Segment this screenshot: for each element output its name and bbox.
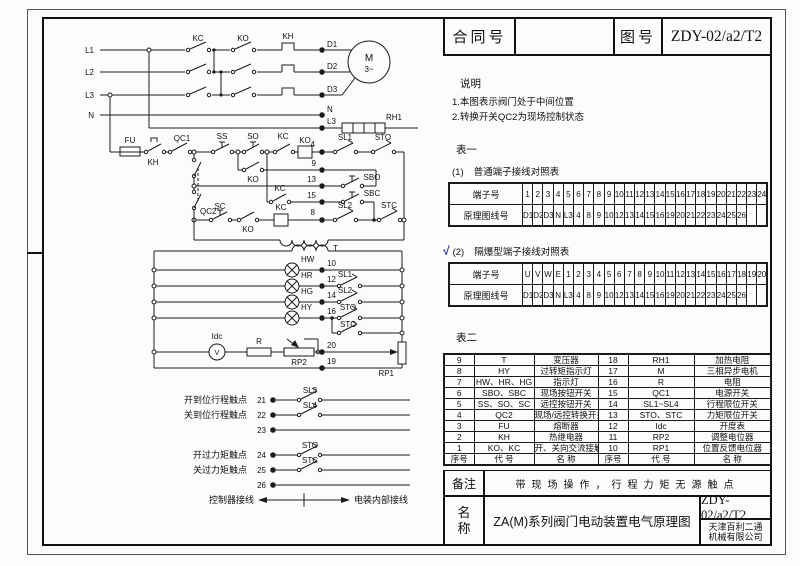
terminal-cell: 18 (736, 263, 746, 285)
schem-label-33: KO (242, 225, 254, 234)
schem-label-2: L3 (85, 91, 94, 100)
contract-no-value (516, 19, 615, 54)
schem-label-67: 24 (257, 451, 266, 460)
terminal-cell: 24 (716, 205, 726, 227)
terminal-cell: 17 (686, 183, 696, 205)
terminal-cell: 18 (696, 183, 706, 205)
schem-label-6: KH (282, 32, 293, 41)
terminal-cell: 8 (584, 205, 594, 227)
terminal-cell: 1 (563, 263, 573, 285)
terminal-cell: 21 (726, 183, 736, 205)
terminal-cell: N (553, 285, 563, 307)
terminal-cell: 1 (523, 183, 533, 205)
component-cell: 位置反馈电位器 (694, 443, 771, 454)
schem-label-43: 12 (327, 275, 336, 284)
component-cell: QC1 (628, 388, 694, 399)
schem-label-46: 14 (327, 291, 336, 300)
component-cell: 热继电器 (534, 432, 598, 443)
terminal-cell: 14 (696, 263, 706, 285)
component-cell: 三相异步电机 (694, 366, 771, 377)
schem-label-64: SL4 (303, 401, 318, 410)
terminal-cell: 22 (696, 285, 706, 307)
component-cell: SS、SO、SC (474, 399, 534, 410)
terminal-cell: 24 (757, 183, 767, 205)
schem-label-62: 关到位行程触点 (184, 409, 247, 420)
component-cell: 过转矩指示灯 (534, 366, 598, 377)
schem-label-34: KC (275, 203, 286, 212)
terminal-cell: 13 (645, 183, 655, 205)
schem-label-31: SBC (364, 189, 381, 198)
component-cell: 开、关向交流接触器 (534, 443, 598, 454)
terminal-cell: 15 (645, 285, 655, 307)
terminal-cell: 16 (655, 205, 665, 227)
schem-label-39: T (333, 244, 338, 253)
schem-label-10: N (327, 105, 333, 114)
terminal-cell: 13 (624, 285, 634, 307)
terminal-row: 原理图线号D1D2D3NL348910121314151619202122232… (449, 285, 767, 307)
terminal-cell: 23 (747, 183, 757, 205)
terminal-cell: 22 (696, 205, 706, 227)
terminal-cell: 8 (635, 263, 645, 285)
component-cell: 电阻 (694, 377, 771, 388)
schem-label-37: STC (381, 201, 397, 210)
schem-label-68: STO (302, 441, 318, 450)
schem-label-11: M (365, 53, 373, 64)
schem-label-14: RH1 (386, 113, 403, 122)
component-cell: 名 称 (694, 454, 771, 466)
component-cell: 代 号 (628, 454, 694, 466)
terminal-cell (747, 285, 757, 307)
component-cell: 名 称 (534, 454, 598, 466)
component-cell: 指示灯 (534, 377, 598, 388)
component-cell: KH (474, 432, 534, 443)
exproof-terminal-table: 端子号UVWE1234567891011121314151617181920原理… (448, 262, 768, 307)
table2-heading: 表二 (456, 330, 477, 345)
schem-label-8: D2 (327, 62, 338, 71)
terminal-cell: 16 (655, 285, 665, 307)
drawing-no-value: ZDY-02/a2/T2 (663, 19, 770, 54)
component-cell: 13 (598, 410, 628, 421)
terminal-cell: 7 (584, 183, 594, 205)
schem-label-7: D1 (327, 40, 338, 49)
component-row: 8HY过转矩指示灯17M三相异步电机 (444, 366, 771, 377)
schem-label-54: R (256, 337, 262, 346)
check-mark: √ (443, 244, 450, 258)
terminal-row: 端子号UVWE1234567891011121314151617181920 (449, 263, 767, 285)
schem-label-63: 22 (257, 411, 266, 420)
terminal-row: 端子号1234567891011121314151617181920212223… (449, 183, 767, 205)
section1-number: (1) (452, 167, 464, 178)
schem-label-23: SL1 (338, 133, 353, 142)
terminal-cell: 4 (553, 183, 563, 205)
contract-no-label: 合同号 (445, 19, 516, 54)
schem-label-12: 3~ (364, 65, 373, 74)
terminal-cell: 9 (604, 183, 614, 205)
terminal-cell: 12 (614, 205, 624, 227)
component-cell: STO、STC (628, 410, 694, 421)
centering-mark (27, 252, 42, 254)
terminal-cell (757, 285, 767, 307)
component-row: 9T变压器18RH1加热电阻 (444, 354, 771, 366)
note-item: 2.转换开关QC2为现场控制状态 (452, 109, 584, 123)
legend-arrows (258, 493, 350, 507)
component-cell: R (628, 377, 694, 388)
terminal-cell: 19 (706, 183, 716, 205)
control-circuit (110, 138, 406, 251)
component-cell: 4 (444, 410, 474, 421)
component-cell: 远控按钮开关 (534, 399, 598, 410)
component-cell: 力矩限位开关 (694, 410, 771, 421)
table1-heading: 表一 (456, 142, 477, 157)
schem-label-26: 9 (312, 159, 317, 168)
component-cell: 16 (598, 377, 628, 388)
schem-label-72: 26 (257, 481, 266, 490)
terminal-cell: 20 (716, 183, 726, 205)
terminal-row: 原理图线号D1D2D3NL348910121314151619202122232… (449, 205, 767, 227)
component-cell: SL1~SL4 (628, 399, 694, 410)
table1-section1-label: (1)普通端子接线对照表 (452, 164, 559, 178)
component-cell: SBO、SBC (474, 388, 534, 399)
terminal-cell: 8 (584, 285, 594, 307)
component-row: 5SS、SO、SC远控按钮开关14SL1~SL4行程限位开关 (444, 399, 771, 410)
name-label: 名称 (445, 497, 485, 544)
terminal-cell: 9 (594, 205, 604, 227)
schem-label-27: 13 (307, 175, 316, 184)
schem-label-50: STO (340, 303, 356, 312)
schem-label-52: Idc (212, 332, 223, 341)
schem-label-59: 开到位行程触点 (184, 394, 247, 405)
component-table: 9T变压器18RH1加热电阻8HY过转矩指示灯17M三相异步电机7HW、HR、H… (443, 353, 772, 466)
terminal-contacts (270, 388, 410, 488)
section2-title: 隔爆型端子接线对照表 (474, 247, 569, 258)
schem-label-28: SBO (364, 173, 381, 182)
terminal-cell: 13 (624, 205, 634, 227)
component-cell: 代 号 (474, 454, 534, 466)
remarks-label: 备注 (445, 471, 485, 495)
terminal-cell: 3 (584, 263, 594, 285)
terminal-cell: 6 (614, 263, 624, 285)
terminal-cell: 26 (736, 205, 746, 227)
component-cell: 9 (444, 354, 474, 366)
terminal-cell: 19 (747, 263, 757, 285)
component-cell: 序号 (444, 454, 474, 466)
table1-section2-label: √(2)隔爆型端子接线对照表 (443, 244, 569, 258)
terminal-cell: D2 (533, 285, 543, 307)
terminal-cell: 20 (675, 285, 685, 307)
terminal-cell: U (523, 263, 533, 285)
schem-label-73: 控制器接线 (209, 494, 254, 505)
schem-label-20: KC (277, 132, 288, 141)
component-cell: FU (474, 421, 534, 432)
component-cell: 调整电位器 (694, 432, 771, 443)
schem-label-42: HR (301, 271, 313, 280)
component-cell: 10 (598, 443, 628, 454)
schem-label-3: N (88, 111, 94, 120)
schem-label-16: KH (147, 158, 158, 167)
schem-label-22: 4 (311, 140, 316, 149)
drawing-no-label: 图号 (615, 19, 663, 54)
component-cell: 电源开关 (694, 388, 771, 399)
schem-label-70: 25 (257, 466, 266, 475)
terminal-cell: 13 (686, 263, 696, 285)
component-cell: 熔断器 (534, 421, 598, 432)
drawing-sheet: L1L2L3NKCKOKHD1D2D3NM3~L3RH1FUKHQC1SSSOK… (0, 0, 800, 566)
component-cell: RH1 (628, 354, 694, 366)
schem-label-48: HY (301, 303, 313, 312)
schem-label-66: 开过力矩触点 (193, 449, 247, 460)
terminal-cell: 14 (635, 285, 645, 307)
schem-label-17: QC1 (174, 134, 191, 143)
component-cell: 8 (444, 366, 474, 377)
component-row: 序号代 号名 称序号代 号名 称 (444, 454, 771, 466)
component-cell: 18 (598, 354, 628, 366)
component-cell: 序号 (598, 454, 628, 466)
section1-title: 普通端子接线对照表 (474, 167, 560, 178)
terminal-cell: 4 (573, 205, 583, 227)
terminal-cell: 25 (726, 285, 736, 307)
schem-label-61: SL3 (303, 386, 318, 395)
schem-label-74: 电装内部接线 (354, 494, 408, 505)
component-cell: 现场/远控转换开关 (534, 410, 598, 421)
schem-label-1: L2 (85, 68, 94, 77)
component-cell: M (628, 366, 694, 377)
schem-label-57: RP1 (378, 369, 394, 378)
terminal-cell: 12 (635, 183, 645, 205)
terminal-cell: 10 (655, 263, 665, 285)
terminal-cell: 3 (543, 183, 553, 205)
terminal-cell: 10 (604, 205, 614, 227)
schem-label-15: FU (125, 136, 136, 145)
schem-label-71: STC (302, 456, 318, 465)
terminal-cell: 9 (594, 285, 604, 307)
schem-label-69: 关过力矩触点 (193, 464, 247, 475)
terminal-cell: 23 (706, 285, 716, 307)
company-line2: 机械有限公司 (708, 532, 762, 543)
component-cell: 14 (598, 399, 628, 410)
terminal-cell: D1 (523, 285, 533, 307)
schem-label-29: KC (274, 184, 285, 193)
component-cell: HY (474, 366, 534, 377)
terminal-cell: 2 (573, 263, 583, 285)
schem-label-25: KO (247, 175, 259, 184)
terminal-cell: 19 (665, 285, 675, 307)
schematic-labels: L1L2L3NKCKOKHD1D2D3NM3~L3RH1FUKHQC1SSSOK… (85, 32, 408, 505)
schem-label-18: SS (217, 132, 228, 141)
terminal-cell: 16 (716, 263, 726, 285)
schem-label-58: 19 (327, 357, 336, 366)
component-cell: 行程限位开关 (694, 399, 771, 410)
schem-label-65: 23 (257, 426, 266, 435)
name-block: 名称 ZA(M)系列阀门电动装置电气原理图 ZDY-02/a2/T2 天津百利二… (443, 497, 772, 546)
component-cell: RP2 (628, 432, 694, 443)
terminal-cell: 4 (594, 263, 604, 285)
component-cell: 6 (444, 388, 474, 399)
component-row: 4QC2现场/远控转换开关13STO、STC力矩限位开关 (444, 410, 771, 421)
schem-label-49: 16 (327, 307, 336, 316)
terminal-cell: 21 (686, 285, 696, 307)
terminal-cell: 5 (563, 183, 573, 205)
row-label: 端子号 (449, 263, 523, 285)
schem-label-4: KC (192, 34, 203, 43)
schem-label-35: 8 (311, 208, 316, 217)
terminal-cell: E (553, 263, 563, 285)
component-cell: 1 (444, 443, 474, 454)
terminal-cell: 15 (706, 263, 716, 285)
component-cell: 5 (444, 399, 474, 410)
terminal-cell: 20 (675, 205, 685, 227)
component-cell: Idc (628, 421, 694, 432)
terminal-cell: L3 (563, 285, 573, 307)
remarks-value: 带现场操作，行程力矩无源触点 (485, 471, 770, 495)
terminal-cell: 5 (604, 263, 614, 285)
terminal-cell: 11 (665, 263, 675, 285)
terminal-cell: D3 (543, 205, 553, 227)
component-cell: 7 (444, 377, 474, 388)
terminal-cell: 9 (645, 263, 655, 285)
schem-label-30: 15 (307, 191, 316, 200)
schem-label-40: HW (301, 255, 315, 264)
schem-label-13: L3 (327, 117, 336, 126)
schem-label-45: HG (301, 287, 313, 296)
notes-heading: 说明 (460, 76, 481, 91)
schem-label-60: 21 (257, 396, 266, 405)
schem-label-0: L1 (85, 46, 94, 55)
component-cell: RP1 (628, 443, 694, 454)
terminal-cell (757, 205, 767, 227)
component-row: 6SBO、SBC现场按钮开关15QC1电源开关 (444, 388, 771, 399)
schem-label-36: SL2 (338, 201, 353, 210)
component-cell: 17 (598, 366, 628, 377)
component-cell: 加热电阻 (694, 354, 771, 366)
schem-label-38: QC2 (200, 207, 217, 216)
component-row: 1KO、KC开、关向交流接触器10RP1位置反馈电位器 (444, 443, 771, 454)
schem-label-53: V (215, 350, 220, 357)
terminal-cell (747, 205, 757, 227)
schem-label-51: STC (340, 320, 356, 329)
terminal-cell: 12 (675, 263, 685, 285)
terminal-cell: 20 (757, 263, 767, 285)
row-label: 原理图线号 (449, 205, 523, 227)
lamp-circuit (152, 251, 406, 371)
terminal-cell: D2 (533, 205, 543, 227)
terminal-cell: 11 (624, 183, 634, 205)
normal-terminal-table: 端子号1234567891011121314151617181920212223… (448, 182, 768, 227)
terminal-cell: 14 (635, 205, 645, 227)
terminal-cell: 15 (665, 183, 675, 205)
schem-label-56: 20 (327, 341, 336, 350)
schem-label-19: SO (247, 132, 259, 141)
terminal-cell: 7 (624, 263, 634, 285)
component-cell: 2 (444, 432, 474, 443)
schem-label-55: RP2 (291, 358, 307, 367)
drawing-title: ZA(M)系列阀门电动装置电气原理图 (485, 497, 701, 544)
schem-label-44: SL1 (338, 270, 353, 279)
title-block: 合同号 图号 ZDY-02/a2/T2 (443, 17, 772, 56)
terminal-cell: 19 (665, 205, 675, 227)
row-label: 端子号 (449, 183, 523, 205)
company-line1: 天津百利二通 (708, 522, 762, 533)
component-row: 3FU熔断器12Idc开度表 (444, 421, 771, 432)
component-cell: 变压器 (534, 354, 598, 366)
terminal-cell: 25 (726, 205, 736, 227)
terminal-cell: 26 (736, 285, 746, 307)
schem-label-9: D3 (327, 85, 338, 94)
terminal-cell: D1 (523, 205, 533, 227)
component-cell: HW、HR、HG (474, 377, 534, 388)
terminal-cell: 16 (675, 183, 685, 205)
terminal-cell: W (543, 263, 553, 285)
component-row: 7HW、HR、HG指示灯16R电阻 (444, 377, 771, 388)
component-cell: KO、KC (474, 443, 534, 454)
row-label: 原理图线号 (449, 285, 523, 307)
terminal-cell: 10 (614, 183, 624, 205)
component-cell: 3 (444, 421, 474, 432)
terminal-cell: 2 (533, 183, 543, 205)
terminal-cell: 21 (686, 205, 696, 227)
terminal-cell: 10 (604, 285, 614, 307)
component-cell: 12 (598, 421, 628, 432)
note-item: 1.本图表示阀门处于中间位置 (452, 94, 574, 108)
schem-label-47: SL2 (338, 286, 353, 295)
terminal-cell: 23 (706, 205, 716, 227)
terminal-cell: 12 (614, 285, 624, 307)
drawing-no-small: ZDY-02/a2/T2 (701, 497, 770, 520)
schem-label-21: KO (299, 136, 311, 145)
terminal-cell: V (533, 263, 543, 285)
component-cell: 11 (598, 432, 628, 443)
component-cell: QC2 (474, 410, 534, 421)
component-cell: T (474, 354, 534, 366)
terminal-cell: 6 (573, 183, 583, 205)
terminal-cell: 15 (645, 205, 655, 227)
terminal-cell: 22 (736, 183, 746, 205)
component-cell: 现场按钮开关 (534, 388, 598, 399)
terminal-cell: 8 (594, 183, 604, 205)
terminal-cell: L3 (563, 205, 573, 227)
component-cell: 开度表 (694, 421, 771, 432)
component-cell: 15 (598, 388, 628, 399)
terminal-cell: D3 (543, 285, 553, 307)
schem-label-24: STO (375, 133, 391, 142)
schematic: L1L2L3NKCKOKHD1D2D3NM3~L3RH1FUKHQC1SSSOK… (42, 10, 443, 546)
terminal-cell: 24 (716, 285, 726, 307)
component-row: 2KH热继电器11RP2调整电位器 (444, 432, 771, 443)
terminal-cell: 4 (573, 285, 583, 307)
schem-label-41: 10 (327, 259, 336, 268)
terminal-cell: N (553, 205, 563, 227)
section2-number: (2) (453, 247, 465, 258)
company-name: 天津百利二通 机械有限公司 (701, 520, 770, 544)
terminal-cell: 17 (726, 263, 736, 285)
terminal-cell: 14 (655, 183, 665, 205)
schem-label-5: KO (237, 34, 249, 43)
